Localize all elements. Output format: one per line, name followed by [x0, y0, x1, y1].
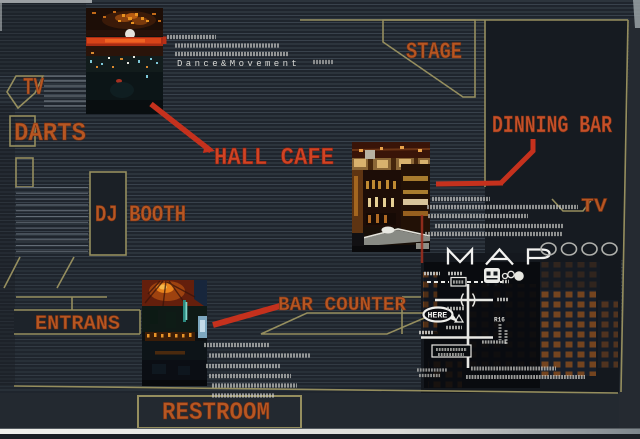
svg-text:DINNING BAR: DINNING BAR: [492, 113, 612, 140]
svg-text:DJ BOOTH: DJ BOOTH: [95, 202, 186, 228]
svg-text:TV: TV: [23, 75, 44, 102]
svg-text:STAGE: STAGE: [406, 39, 462, 65]
svg-text:Dance&Movement: Dance&Movement: [177, 59, 300, 69]
svg-text:HALL CAFE: HALL CAFE: [214, 145, 334, 172]
svg-text:TV: TV: [581, 196, 608, 218]
svg-text:BAR COUNTER: BAR COUNTER: [278, 294, 407, 316]
svg-text:HERE: HERE: [428, 312, 448, 321]
svg-text:ENTRANS: ENTRANS: [35, 313, 120, 336]
svg-text:DARTS: DARTS: [14, 118, 86, 148]
svg-text:RESTROOM: RESTROOM: [162, 398, 270, 427]
svg-text:R16: R16: [494, 317, 505, 324]
